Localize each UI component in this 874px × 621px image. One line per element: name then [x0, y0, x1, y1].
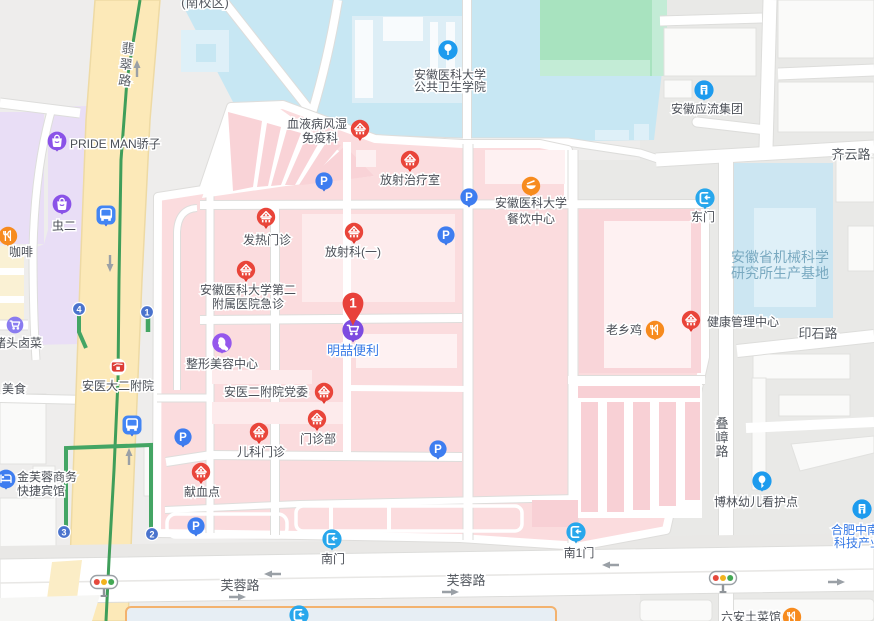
- svg-text:路: 路: [715, 444, 728, 459]
- svg-text:(南校区): (南校区): [181, 0, 229, 10]
- svg-text:快捷宾馆: 快捷宾馆: [17, 483, 65, 498]
- svg-text:猪头卤菜: 猪头卤菜: [0, 336, 42, 350]
- svg-text:PRIDE MAN骄子: PRIDE MAN骄子: [70, 137, 161, 151]
- svg-text:明喆便利: 明喆便利: [327, 343, 379, 358]
- svg-text:免疫科: 免疫科: [302, 130, 338, 145]
- svg-text:安徽医科大学第二: 安徽医科大学第二: [200, 282, 296, 297]
- svg-text:咖啡: 咖啡: [9, 244, 33, 259]
- svg-text:儿科门诊: 儿科门诊: [237, 444, 285, 459]
- svg-text:安医大二附院: 安医大二附院: [82, 378, 154, 393]
- svg-text:六安土菜馆: 六安土菜馆: [721, 609, 781, 621]
- svg-text:科技产业: 科技产业: [834, 536, 874, 550]
- svg-text:路: 路: [118, 72, 133, 88]
- svg-text:安徽应流集团: 安徽应流集团: [671, 101, 743, 116]
- svg-text:嶂: 嶂: [715, 430, 728, 445]
- svg-text:2: 2: [149, 530, 154, 540]
- svg-text:放射科(一): 放射科(一): [325, 244, 381, 259]
- svg-text:齐云路: 齐云路: [831, 147, 870, 162]
- svg-text:安医二附院党委: 安医二附院党委: [224, 384, 308, 399]
- svg-text:1: 1: [144, 308, 149, 318]
- svg-text:翡: 翡: [121, 40, 136, 56]
- svg-text:芙蓉路: 芙蓉路: [446, 573, 485, 588]
- svg-text:附属医院急诊: 附属医院急诊: [212, 296, 284, 311]
- svg-text:虫二: 虫二: [52, 219, 76, 233]
- svg-text:博林幼儿看护点: 博林幼儿看护点: [714, 494, 798, 509]
- svg-text:3: 3: [61, 528, 66, 538]
- svg-text:献血点: 献血点: [184, 484, 220, 499]
- svg-text:老乡鸡: 老乡鸡: [606, 322, 642, 337]
- svg-text:安徽省机械科学: 安徽省机械科学: [731, 249, 829, 265]
- svg-text:翠: 翠: [119, 56, 134, 72]
- svg-text:放射治疗室: 放射治疗室: [380, 172, 440, 187]
- svg-text:门诊部: 门诊部: [300, 431, 336, 446]
- svg-text:发热门诊: 发热门诊: [243, 232, 291, 247]
- svg-text:安徽医科大学: 安徽医科大学: [495, 195, 567, 210]
- svg-text:合肥中南: 合肥中南: [831, 522, 874, 537]
- svg-text:健康管理中心: 健康管理中心: [707, 314, 779, 329]
- svg-text:南门: 南门: [321, 551, 345, 566]
- svg-text:4: 4: [76, 305, 81, 315]
- svg-text:美食: 美食: [2, 381, 26, 396]
- svg-text:南1门: 南1门: [564, 545, 595, 560]
- svg-text:公共卫生学院: 公共卫生学院: [414, 79, 486, 94]
- svg-text:金芙蓉商务: 金芙蓉商务: [17, 469, 77, 484]
- svg-text:血液病风湿: 血液病风湿: [287, 116, 347, 131]
- svg-text:东门: 东门: [691, 209, 715, 224]
- svg-text:芙蓉路: 芙蓉路: [220, 578, 259, 593]
- svg-text:印石路: 印石路: [798, 326, 837, 341]
- svg-text:叠: 叠: [715, 416, 728, 431]
- svg-text:整形美容中心: 整形美容中心: [186, 356, 258, 371]
- svg-text:餐饮中心: 餐饮中心: [507, 211, 555, 226]
- svg-text:研究所生产基地: 研究所生产基地: [731, 265, 829, 281]
